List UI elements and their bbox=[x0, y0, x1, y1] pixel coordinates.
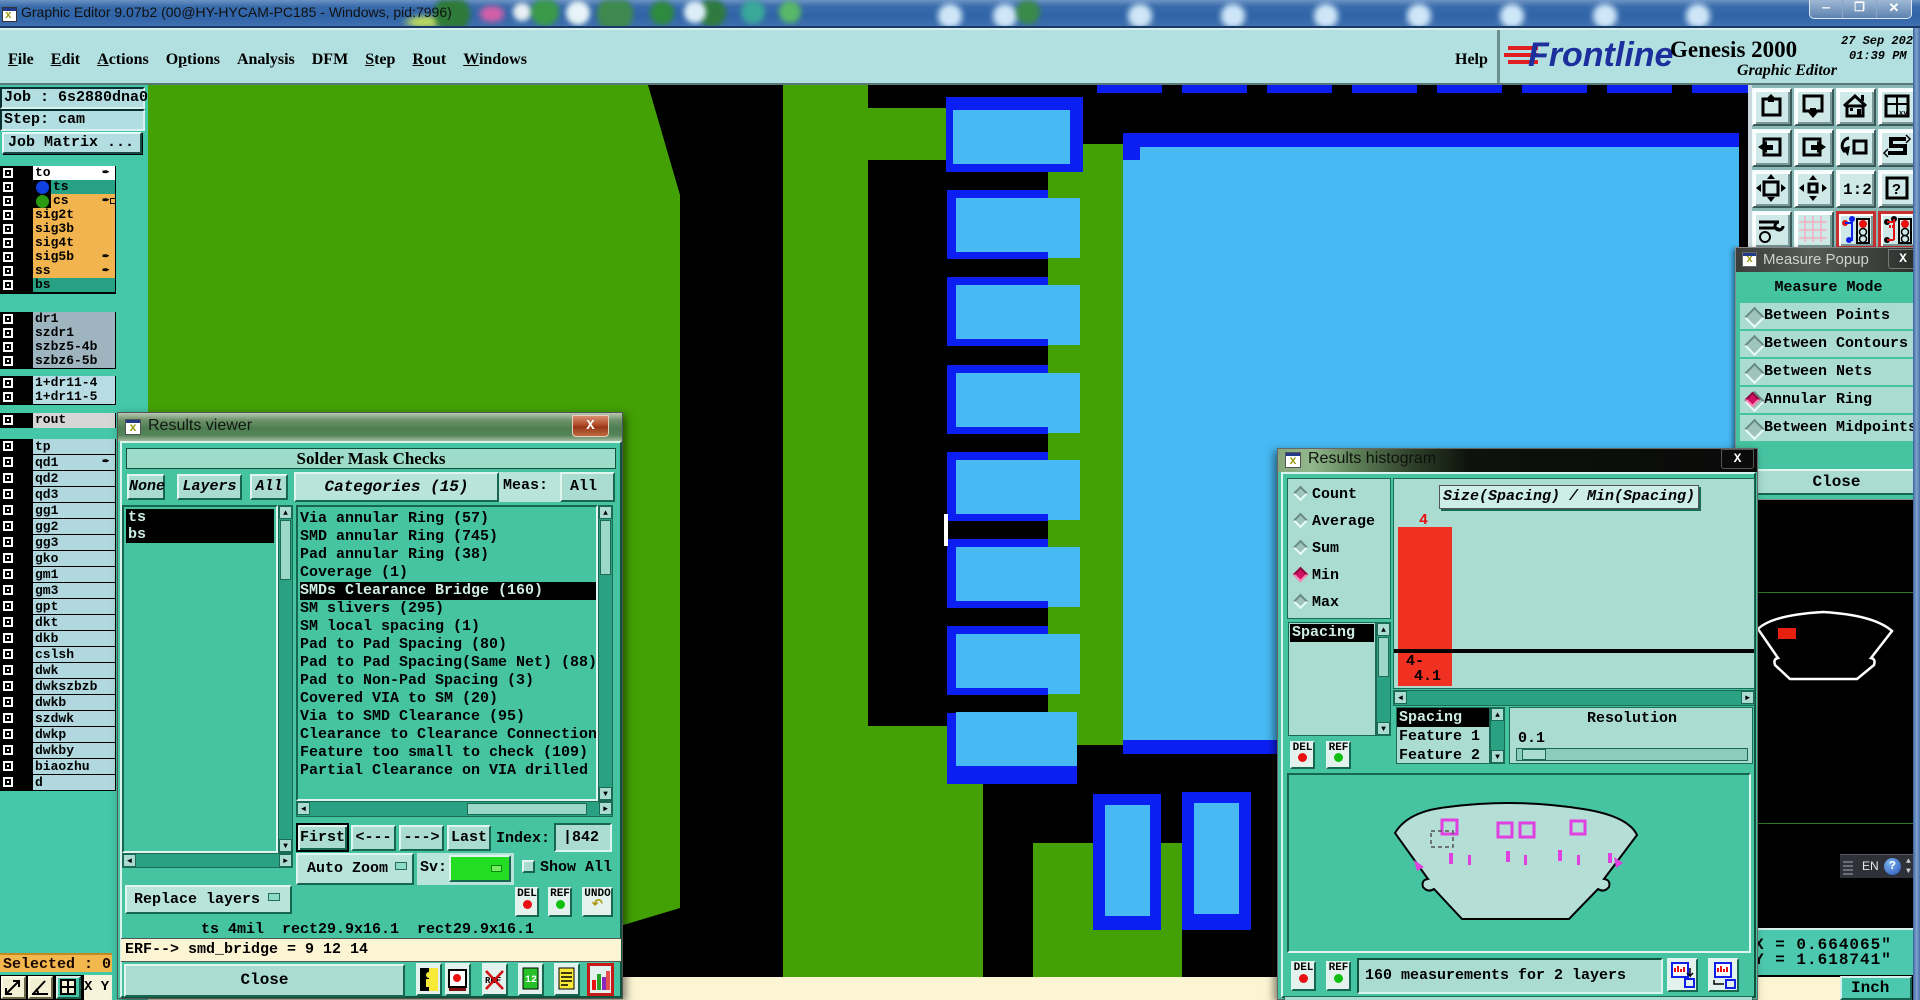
svg-text:1:2: 1:2 bbox=[1843, 181, 1871, 199]
svg-text:?: ? bbox=[1892, 182, 1901, 199]
svg-text:xy: xy bbox=[1899, 110, 1908, 118]
svg-text:12: 12 bbox=[525, 975, 537, 986]
